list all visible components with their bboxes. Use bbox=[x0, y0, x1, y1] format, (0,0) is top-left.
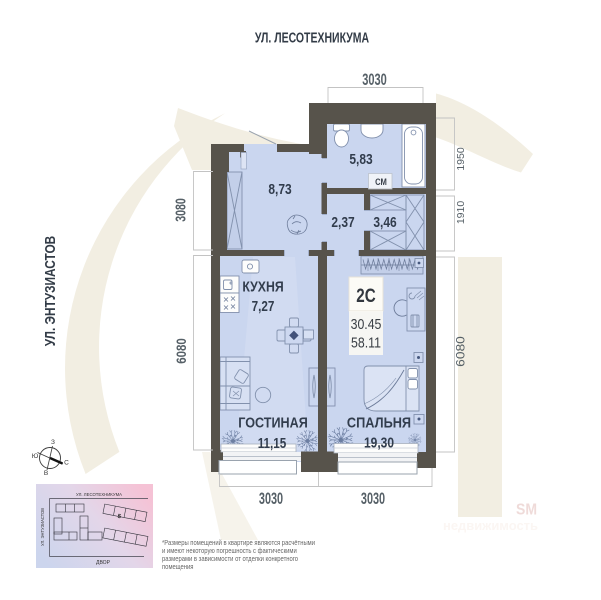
svg-text:КУХНЯ: КУХНЯ bbox=[242, 278, 283, 294]
svg-text:С: С bbox=[64, 460, 69, 467]
svg-text:3030: 3030 bbox=[259, 490, 283, 509]
svg-text:SM: SM bbox=[516, 502, 537, 519]
svg-text:1950: 1950 bbox=[456, 147, 467, 171]
svg-text:3030: 3030 bbox=[362, 71, 387, 90]
svg-text:5,83: 5,83 bbox=[349, 151, 373, 168]
svg-text:помещения: помещения bbox=[162, 564, 194, 572]
svg-text:3080: 3080 bbox=[173, 198, 189, 222]
svg-text:УЛ. ЛЕСОТЕХНИКУМА: УЛ. ЛЕСОТЕХНИКУМА bbox=[76, 492, 122, 497]
svg-text:3,46: 3,46 bbox=[373, 214, 397, 231]
svg-text:2С: 2С bbox=[356, 284, 375, 306]
svg-text:СМ: СМ bbox=[375, 176, 387, 187]
svg-text:В: В bbox=[44, 470, 48, 477]
svg-text:58.11: 58.11 bbox=[351, 335, 381, 351]
svg-text:недвижимость: недвижимость bbox=[443, 518, 538, 533]
svg-text:ГОСТИНАЯ: ГОСТИНАЯ bbox=[238, 413, 308, 430]
svg-text:УЛ. ЭНТУЗИАСТОВ: УЛ. ЭНТУЗИАСТОВ bbox=[40, 508, 45, 546]
svg-text:8,73: 8,73 bbox=[268, 181, 292, 198]
svg-text:и имеют некоторую погрешность: и имеют некоторую погрешность с фактичес… bbox=[162, 548, 297, 556]
svg-text:УЛ. ЭНТУЗИАСТОВ: УЛ. ЭНТУЗИАСТОВ bbox=[42, 236, 59, 347]
svg-text:*Размеры помещений в квартире: *Размеры помещений в квартире являются р… bbox=[162, 539, 315, 548]
svg-text:СПАЛЬНЯ: СПАЛЬНЯ bbox=[347, 413, 411, 430]
svg-text:30.45: 30.45 bbox=[351, 316, 382, 332]
svg-text:3030: 3030 bbox=[361, 490, 385, 509]
svg-text:УЛ. ЛЕСОТЕХНИКУМА: УЛ. ЛЕСОТЕХНИКУМА bbox=[255, 29, 369, 46]
svg-text:З: З bbox=[51, 439, 55, 446]
svg-text:7,27: 7,27 bbox=[252, 298, 275, 315]
svg-text:19,30: 19,30 bbox=[364, 434, 394, 451]
svg-text:1910: 1910 bbox=[456, 201, 467, 225]
svg-text:11,15: 11,15 bbox=[258, 435, 287, 452]
svg-text:2,37: 2,37 bbox=[331, 214, 354, 231]
svg-text:6080: 6080 bbox=[173, 338, 189, 364]
svg-text:6080: 6080 bbox=[455, 336, 468, 367]
svg-text:Ю: Ю bbox=[32, 453, 39, 460]
svg-text:ДВОР: ДВОР bbox=[96, 560, 111, 566]
svg-text:размерами в зависимости от отд: размерами в зависимости от отделки конкр… bbox=[162, 556, 298, 564]
